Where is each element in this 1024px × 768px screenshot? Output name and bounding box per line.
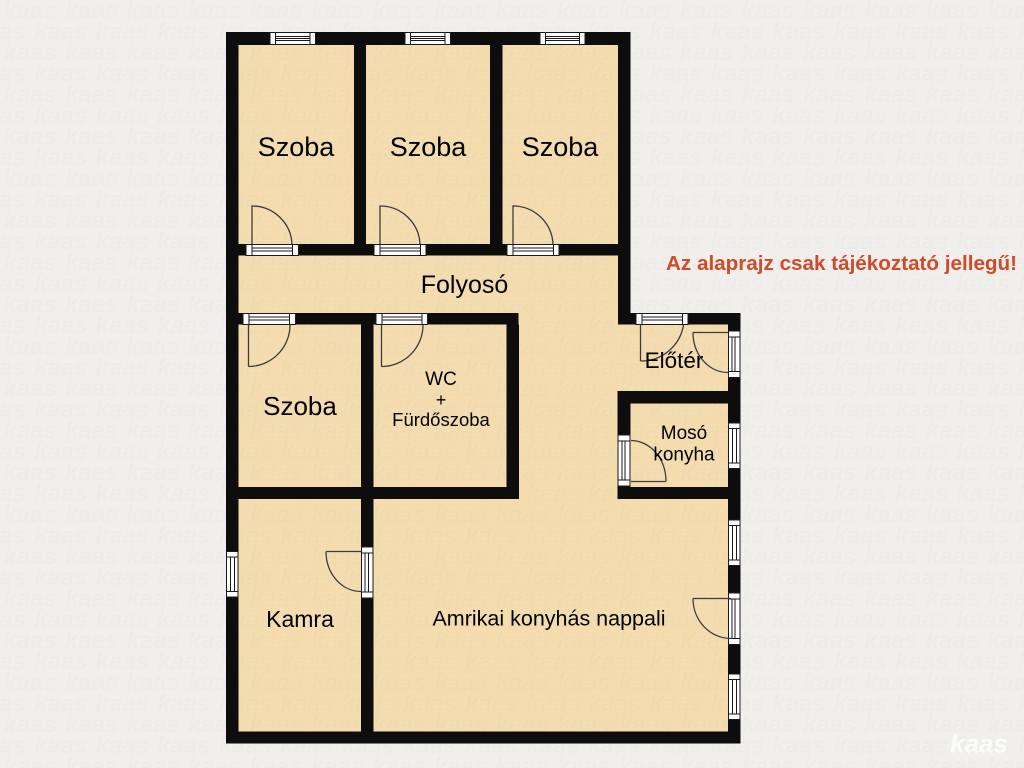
svg-text:Az alaprajz csak tájékoztató j: Az alaprajz csak tájékoztató jellegű! <box>666 252 1017 275</box>
svg-text:Folyosó: Folyosó <box>421 271 509 299</box>
svg-text:Mosó: Mosó <box>661 423 707 444</box>
svg-text:WC: WC <box>425 369 457 390</box>
svg-text:Fürdőszoba: Fürdőszoba <box>392 409 490 430</box>
svg-text:Szoba: Szoba <box>263 391 337 421</box>
svg-text:Szoba: Szoba <box>390 132 468 162</box>
svg-text:Amrikai konyhás nappali: Amrikai konyhás nappali <box>432 607 665 631</box>
svg-text:Előtér: Előtér <box>645 348 704 373</box>
svg-text:Kamra: Kamra <box>266 606 334 632</box>
svg-text:+: + <box>436 390 447 410</box>
svg-text:konyha: konyha <box>653 445 715 466</box>
svg-text:Szoba: Szoba <box>522 132 600 162</box>
svg-text:kaas: kaas <box>950 729 1008 759</box>
svg-text:Szoba: Szoba <box>258 132 336 162</box>
